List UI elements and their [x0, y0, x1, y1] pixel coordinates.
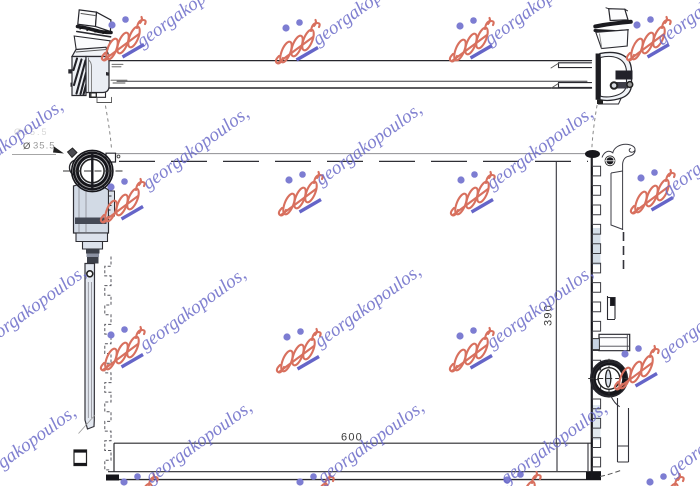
svg-text:georgakopoulos,: georgakopoulos, [664, 390, 700, 481]
svg-text:georgakopoulos,: georgakopoulos, [312, 99, 427, 190]
svg-text:georgakopoulos,: georgakopoulos, [659, 110, 700, 201]
svg-text:georgakopoulos,: georgakopoulos, [483, 103, 598, 194]
svg-text:georgakopoulos,: georgakopoulos, [139, 103, 254, 194]
svg-text:georgakopoulos,: georgakopoulos, [142, 397, 257, 486]
svg-text:georgakopoulos,: georgakopoulos, [655, 273, 700, 364]
svg-text:georgakopoulos,: georgakopoulos, [309, 0, 424, 50]
svg-text:georgakopoulos,: georgakopoulos, [481, 0, 596, 50]
svg-text:georgakopoulos,: georgakopoulos, [483, 262, 598, 353]
svg-text:georgakopoulos,: georgakopoulos, [653, 0, 700, 50]
svg-text:georgakopoulos,: georgakopoulos, [314, 397, 429, 486]
svg-text:georgakopoulos,: georgakopoulos, [311, 261, 426, 352]
svg-text:35.5: 35.5 [33, 141, 56, 152]
svg-text:georgakopoulos,: georgakopoulos, [133, 0, 248, 52]
svg-text:georgakopoulos,: georgakopoulos, [0, 262, 90, 353]
svg-text:georgakopoulos,: georgakopoulos, [0, 402, 80, 486]
svg-text:georgakopoulos,: georgakopoulos, [136, 264, 251, 355]
